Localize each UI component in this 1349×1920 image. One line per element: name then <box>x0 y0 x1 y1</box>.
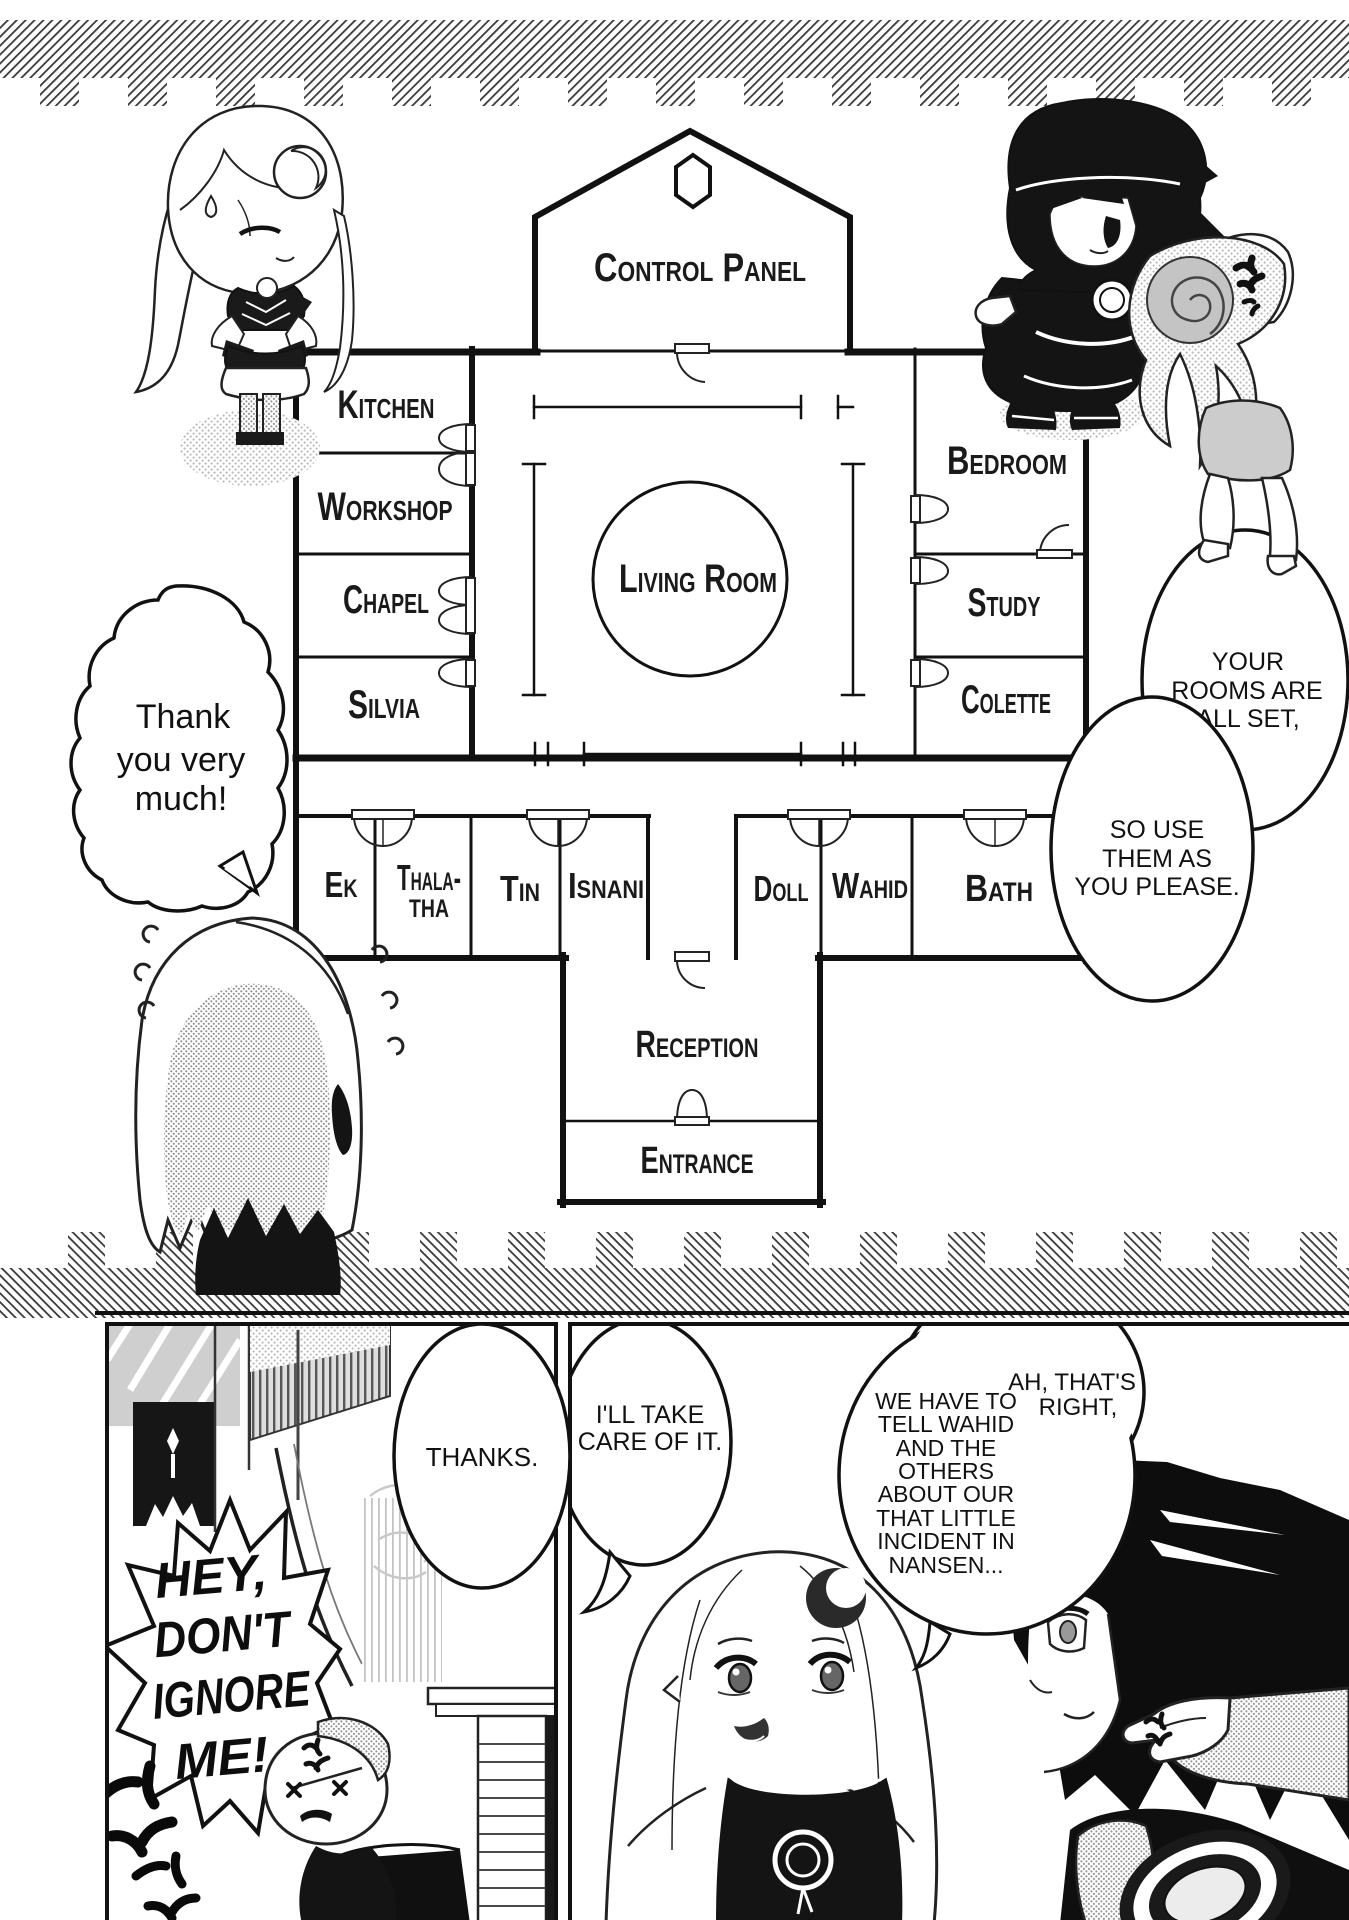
svg-text:I'LL TAKE: I'LL TAKE <box>596 1401 705 1429</box>
svg-text:Wahid: Wahid <box>832 865 908 906</box>
svg-text:Bedroom: Bedroom <box>947 439 1067 483</box>
svg-text:Colette: Colette <box>961 678 1051 722</box>
svg-text:NANSEN...: NANSEN... <box>888 1552 1003 1578</box>
svg-text:SO USE: SO USE <box>1110 816 1204 844</box>
svg-text:Reception: Reception <box>636 1024 759 1066</box>
svg-text:Tin: Tin <box>500 868 540 909</box>
svg-text:ABOUT OUR: ABOUT OUR <box>878 1481 1014 1507</box>
svg-text:you very: you very <box>117 741 246 779</box>
svg-text:YOU PLEASE.: YOU PLEASE. <box>1074 873 1239 901</box>
svg-text:Living Room: Living Room <box>619 557 777 601</box>
svg-text:Silvia: Silvia <box>348 683 420 727</box>
svg-text:Control Panel: Control Panel <box>594 246 806 290</box>
svg-text:Chapel: Chapel <box>343 578 429 622</box>
svg-text:RIGHT,: RIGHT, <box>1039 1394 1118 1421</box>
svg-text:Bath: Bath <box>965 868 1033 910</box>
svg-text:Kitchen: Kitchen <box>338 383 435 427</box>
svg-text:INCIDENT IN: INCIDENT IN <box>877 1528 1015 1554</box>
svg-text:THEM AS: THEM AS <box>1102 845 1212 873</box>
svg-text:Entrance: Entrance <box>641 1140 754 1182</box>
svg-text:Thank: Thank <box>136 698 231 736</box>
svg-text:YOUR: YOUR <box>1212 648 1284 676</box>
svg-text:CARE OF IT.: CARE OF IT. <box>578 1428 722 1456</box>
svg-text:TELL WAHID: TELL WAHID <box>878 1411 1014 1437</box>
svg-text:Study: Study <box>968 581 1041 625</box>
svg-text:much!: much! <box>135 780 228 818</box>
svg-text:ROOMS ARE: ROOMS ARE <box>1171 677 1322 705</box>
svg-text:Isnani: Isnani <box>568 865 644 906</box>
svg-text:Ek: Ek <box>325 864 358 905</box>
svg-text:Doll: Doll <box>754 868 809 909</box>
svg-text:ME!: ME! <box>172 1726 271 1790</box>
svg-text:tha: tha <box>409 884 449 925</box>
svg-text:HEY,: HEY, <box>153 1544 269 1610</box>
svg-text:THANKS.: THANKS. <box>426 1442 539 1472</box>
svg-text:Workshop: Workshop <box>318 485 453 529</box>
svg-text:AH, THAT'S: AH, THAT'S <box>1008 1369 1136 1396</box>
